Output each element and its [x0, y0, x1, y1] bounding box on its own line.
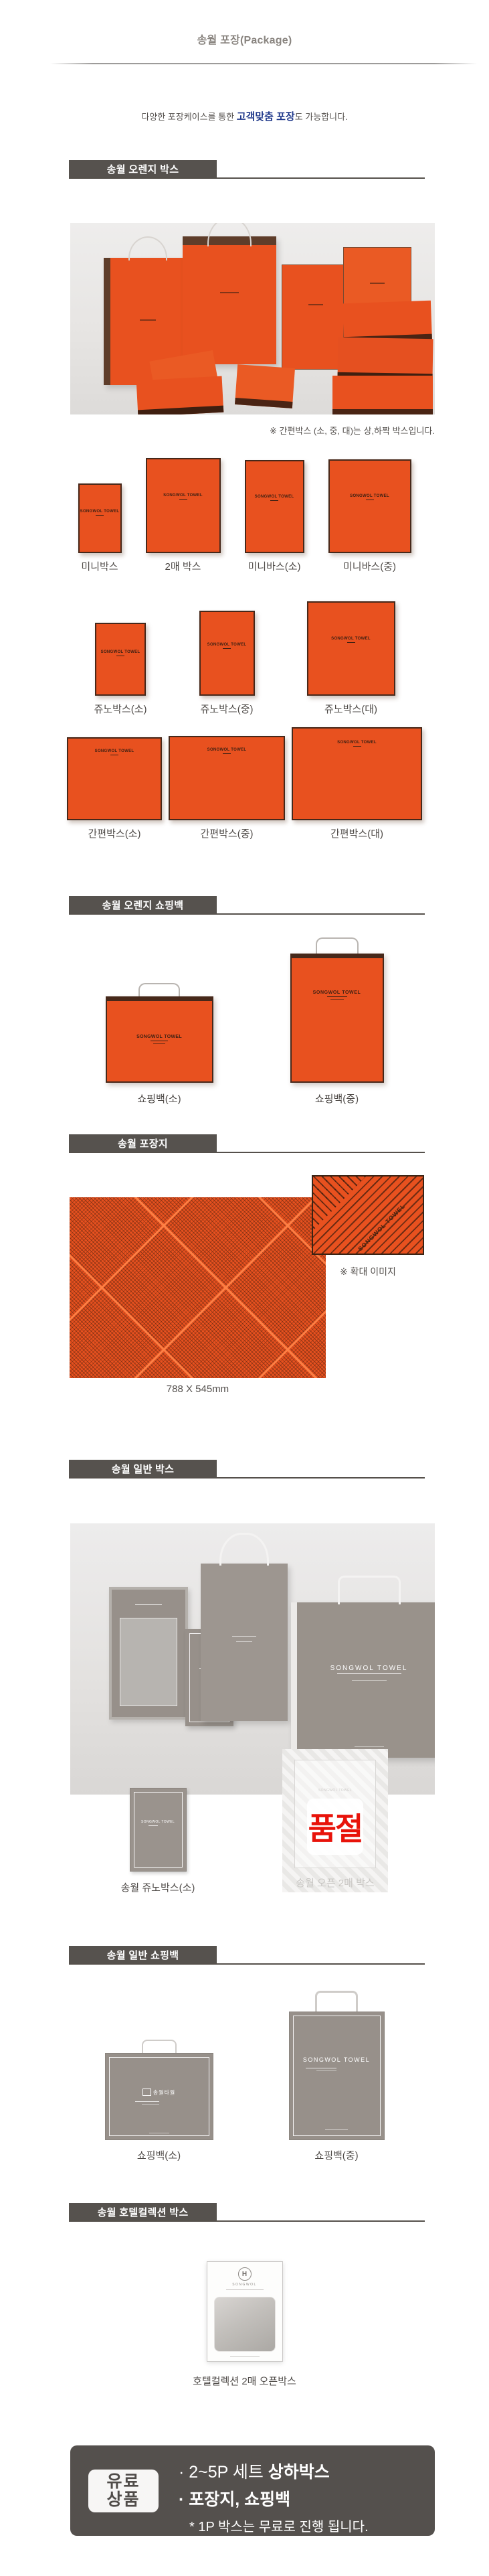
product-figure: SONGWOL TOWEL미니바스(중)	[328, 459, 411, 573]
section-header-wrapping-paper: 송월 포장지	[69, 1134, 425, 1153]
intro-pre: 다양한 포장케이스를 통한	[141, 112, 236, 122]
figure-label: 2매 박스	[165, 561, 201, 573]
orange-box: SONGWOL TOWEL	[199, 611, 255, 696]
photo-brand-mark: SONGWOL TOWEL	[297, 1661, 435, 1673]
photo-small-box	[235, 364, 295, 408]
product-figure: SONGWOL TOWEL간편박스(대)	[292, 727, 422, 840]
product-figure: SONGWOL TOWEL 쇼핑백(중)	[289, 1991, 385, 2162]
figure-label: 쥬노박스(중)	[201, 704, 254, 716]
product-figure: SONGWOL TOWEL미니바스(소)	[245, 460, 304, 573]
product-figure: 송월타월 쇼핑백(소)	[105, 2040, 213, 2162]
intro-highlight: 고객맞춤 포장	[237, 111, 295, 123]
page: 송월 포장(Package) 다양한 포장케이스를 통한 고객맞춤 포장도 가능…	[0, 0, 489, 2576]
section-tab: 송월 오렌지 박스	[69, 160, 217, 177]
product-figure: SONGWOL TOWEL쥬노박스(소)	[94, 623, 147, 716]
brand-mark: SONGWOL TOWEL	[330, 494, 410, 500]
figure-label: 미니바스(중)	[343, 561, 396, 573]
brand-mark: SONGWOL TOWEL	[293, 741, 421, 747]
banner-line2: · 포장지, 쇼핑백	[179, 2486, 369, 2510]
figure-label: 송월 오픈 2매 박스	[282, 1876, 388, 1890]
plain-bag-row: 송월타월 쇼핑백(소) SONGWOL TOWEL 쇼핑백(중)	[0, 1991, 489, 2162]
orange-box: SONGWOL TOWEL	[169, 736, 285, 820]
box-frame	[134, 1792, 183, 1868]
photo-bag-handle	[219, 1533, 269, 1566]
gray-shopping-bag-medium: SONGWOL TOWEL	[289, 2012, 385, 2140]
product-figure: H SONGWOL 호텔컬렉션 2매 오픈박스	[0, 2261, 489, 2388]
hotel-collection-box: H SONGWOL	[207, 2261, 283, 2362]
figure-label: 쥬노박스(소)	[94, 704, 147, 716]
hotel-logo-icon: H	[238, 2267, 252, 2281]
figure-label: 간편박스(대)	[330, 828, 383, 840]
gray-shopping-bag-small: 송월타월	[105, 2053, 213, 2140]
orange-box: SONGWOL TOWEL	[146, 458, 221, 553]
box-footer-line	[230, 2356, 260, 2357]
bag-handle	[142, 2040, 177, 2053]
bag-footer-line	[149, 2133, 169, 2133]
orange-box: SONGWOL TOWEL	[307, 601, 395, 696]
banner-text: · 2~5P 세트 상하박스 · 포장지, 쇼핑백 * 1P 박스는 무료로 진…	[179, 2459, 369, 2535]
brand-mark: SONGWOL TOWEL	[147, 494, 219, 500]
product-figure: SONGWOL TOWEL 쇼핑백(중)	[290, 937, 384, 1106]
photo-bag-handle	[207, 223, 252, 246]
banner-line1: · 2~5P 세트 상하박스	[179, 2459, 369, 2483]
bag-footer-line	[325, 2129, 348, 2130]
section-tab: 송월 일반 박스	[69, 1460, 217, 1477]
photo-brand-line	[352, 1680, 387, 1681]
soldout-stamp: 품절	[307, 1799, 363, 1855]
photo-brand-line	[355, 1746, 384, 1747]
brand-mark: SONGWOL TOWEL	[80, 510, 120, 516]
bag-handle	[138, 983, 180, 996]
orange-box: SONGWOL TOWEL	[95, 623, 146, 696]
page-title: 송월 포장(Package)	[0, 31, 489, 47]
product-figure: SONGWOL TOWEL쥬노박스(중)	[199, 611, 255, 716]
section-tab: 송월 포장지	[69, 1134, 217, 1152]
banner-line3: * 1P 박스는 무료로 진행 됩니다.	[179, 2516, 369, 2535]
brand-mark: SONGWOL TOWEL	[246, 495, 303, 501]
wrapping-paper-zoom: SONGWOL TOWEL	[312, 1175, 424, 1255]
orange-box-row: SONGWOL TOWEL간편박스(소)SONGWOL TOWEL간편박스(중)…	[0, 727, 489, 840]
bag-handle	[315, 1991, 358, 2012]
badge-line2: 상품	[106, 2491, 140, 2509]
photo-brand-line	[337, 1673, 401, 1674]
section-header-plain-box: 송월 일반 박스	[69, 1460, 425, 1479]
photo-orange-bag	[183, 236, 276, 364]
orange-box: SONGWOL TOWEL	[328, 459, 411, 553]
badge-line1: 유료	[106, 2473, 140, 2491]
brand-mark: SONGWOL	[207, 2283, 282, 2287]
orange-box-row: SONGWOL TOWEL미니박스SONGWOL TOWEL2매 박스SONGW…	[0, 458, 489, 573]
soldout-product: SONGWOL TOWEL 품절 송월 오픈 2매 박스	[282, 1749, 388, 1892]
photo-small-box	[136, 376, 224, 414]
box-window	[214, 2297, 276, 2352]
brand-mark: SONGWOL TOWEL	[130, 1820, 186, 1826]
section-header-orange-bag: 송월 오렌지 쇼핑백	[69, 896, 425, 915]
section-tab: 송월 오렌지 쇼핑백	[69, 896, 217, 913]
gray-juno-box: SONGWOL TOWEL	[130, 1788, 187, 1872]
figure-label: 간편박스(중)	[201, 828, 254, 840]
section-tab: 송월 일반 쇼핑백	[69, 1946, 217, 1963]
product-figure: SONGWOL TOWEL 쇼핑백(소)	[106, 983, 213, 1106]
photo-stacked-box	[332, 376, 433, 414]
figure-label: 호텔컬렉션 2매 오픈박스	[193, 2374, 296, 2388]
photo-bag-handle	[338, 1576, 401, 1604]
figure-label: 미니박스	[81, 561, 118, 573]
figure-label: 쇼핑백(소)	[137, 2150, 181, 2162]
orange-bag-row: SONGWOL TOWEL 쇼핑백(소) SONGWOL TOWEL 쇼핑백(중…	[0, 937, 489, 1106]
brand-mark: SONGWOL TOWEL	[292, 990, 383, 1000]
title-divider	[50, 63, 477, 64]
orange-shopping-bag-medium: SONGWOL TOWEL	[290, 954, 384, 1083]
section-header-hotel-box: 송월 호텔컬렉션 박스	[69, 2203, 425, 2222]
figure-label: 간편박스(소)	[88, 828, 141, 840]
orange-box: SONGWOL TOWEL	[78, 483, 122, 553]
product-figure: SONGWOL TOWEL 송월 쥬노박스(소)	[100, 1788, 215, 1894]
section-header-orange-box: 송월 오렌지 박스	[69, 160, 425, 179]
figure-label: 쇼핑백(소)	[137, 1093, 181, 1106]
orange-box-note: ※ 간편박스 (소, 중, 대)는 상,하짝 박스입니다.	[70, 424, 435, 437]
orange-shopping-bag-small: SONGWOL TOWEL	[106, 996, 213, 1083]
photo-brand-mark	[140, 319, 156, 321]
brand-mark: SONGWOL TOWEL	[68, 749, 161, 755]
brand-mark: SONGWOL TOWEL	[308, 637, 394, 643]
intro-text: 다양한 포장케이스를 통한 고객맞춤 포장도 가능합니다.	[0, 109, 489, 123]
photo-brand-mark	[232, 1636, 256, 1637]
divider-line	[226, 2289, 264, 2290]
section-tab: 송월 호텔컬렉션 박스	[69, 2203, 217, 2220]
brand-mark: SONGWOL TOWEL	[96, 650, 144, 656]
photo-brand-mark	[220, 292, 239, 293]
orange-box: SONGWOL TOWEL	[245, 460, 304, 553]
logo-icon	[142, 2089, 151, 2096]
photo-gray-box-window	[109, 1587, 188, 1720]
brand-mark: SONGWOL TOWEL	[357, 1203, 406, 1252]
paid-items-banner: 유료 상품 · 2~5P 세트 상하박스 · 포장지, 쇼핑백 * 1P 박스는…	[70, 2445, 435, 2536]
brand-mark: 송월타월	[106, 2087, 213, 2105]
orange-box: SONGWOL TOWEL	[67, 737, 162, 820]
photo-box-window	[120, 1618, 177, 1706]
brand-mark: SONGWOL TOWEL	[290, 2053, 384, 2071]
section-header-plain-bag: 송월 일반 쇼핑백	[69, 1946, 425, 1965]
figure-label: 쥬노박스(대)	[324, 704, 377, 716]
orange-box: SONGWOL TOWEL	[292, 727, 422, 820]
wrapping-paper-size: 788 X 545mm	[70, 1383, 326, 1395]
photo-brand-mark	[236, 1641, 252, 1642]
zoom-note: ※ 확대 이미지	[312, 1265, 424, 1278]
photo-bag-handle	[128, 236, 167, 260]
brand-mark: SONGWOL TOWEL	[295, 1789, 375, 1793]
figure-label: 미니바스(소)	[248, 561, 301, 573]
photo-gray-bag-large: SONGWOL TOWEL	[291, 1602, 435, 1758]
bag-frame	[293, 2016, 381, 2136]
product-figure: SONGWOL TOWEL미니박스	[78, 483, 122, 573]
brand-mark: SONGWOL TOWEL	[201, 643, 254, 649]
paid-badge: 유료 상품	[88, 2470, 159, 2512]
product-figure: SONGWOL TOWEL간편박스(소)	[67, 737, 162, 840]
figure-label: 쇼핑백(중)	[314, 2150, 358, 2162]
intro-post: 도 가능합니다.	[295, 112, 348, 122]
product-figure: SONGWOL TOWEL2매 박스	[146, 458, 221, 573]
figure-label: 송월 쥬노박스(소)	[121, 1882, 195, 1894]
brand-mark: SONGWOL TOWEL	[107, 1035, 212, 1044]
photo-brand-mark	[370, 283, 385, 284]
photo-gray-bag	[201, 1564, 288, 1721]
product-figure: SONGWOL TOWEL쥬노박스(대)	[307, 601, 395, 716]
product-figure: SONGWOL TOWEL간편박스(중)	[169, 736, 285, 840]
photo-brand-mark	[135, 1604, 162, 1605]
figure-label: 쇼핑백(중)	[315, 1093, 359, 1106]
brand-mark: SONGWOL TOWEL	[170, 748, 284, 754]
photo-brand-mark	[308, 304, 323, 305]
orange-box-row: SONGWOL TOWEL쥬노박스(소)SONGWOL TOWEL쥬노박스(중)…	[0, 601, 489, 716]
bag-handle	[316, 937, 359, 954]
wrapping-paper	[70, 1197, 326, 1378]
orange-box-photo	[70, 223, 435, 414]
